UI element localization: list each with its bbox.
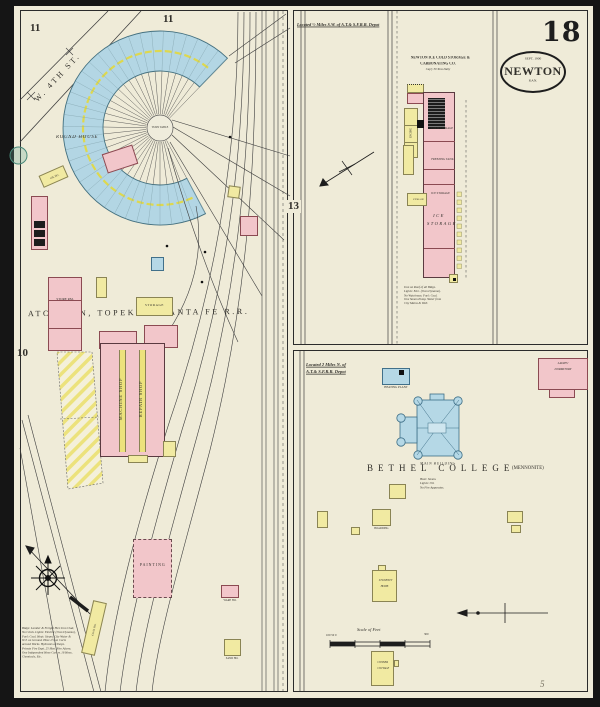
- adjacent-sheet-11-left: 11: [30, 22, 40, 35]
- students-home-label-1: STUDENTS': [379, 579, 390, 582]
- ice-storage-label-2a: ICE: [427, 214, 451, 219]
- library-stamp: [10, 147, 27, 164]
- building-sand-house-ne: [240, 216, 258, 236]
- left-panel-notes: Bldgs: Lumber & Freight Ho's Iron Clad,N…: [22, 627, 116, 659]
- bethel-college-label: BETHEL COLLEGE: [367, 463, 514, 474]
- building-heating-plant: [382, 368, 410, 385]
- adjacent-sheet-11-mid: 11: [163, 13, 173, 26]
- ice-company-name-2: CARBONATING CO.: [411, 62, 466, 66]
- heating-plant-chimney: [399, 370, 404, 375]
- heating-plant-label: HEATING PLANT: [384, 386, 408, 390]
- ice-cooling-building: [403, 145, 414, 175]
- cold-storage-label: COLD STORAGE: [431, 127, 446, 130]
- building-small-w1: [317, 511, 328, 528]
- ice-small-outbuilding: [449, 274, 458, 283]
- ice-storage-annex-label: STORAGE: [413, 198, 421, 201]
- college-located-label-1: Located 2 Miles N. of: [306, 363, 346, 368]
- stamp-date: SEPT. 1900: [515, 57, 551, 61]
- loading-platform-posts: [457, 192, 462, 269]
- building-yellow-narrow: [96, 277, 107, 298]
- paint-shop-label: PAINTING: [140, 563, 165, 568]
- compass-rose: [31, 556, 65, 595]
- adjacent-sheet-10: 10: [17, 347, 28, 360]
- boarding-label: BOARDING: [374, 527, 388, 530]
- conner-cottage-label-1: CONNER: [377, 661, 387, 664]
- pencil-mark: 5: [540, 679, 545, 690]
- stamp-city: NEWTON: [502, 64, 564, 78]
- ware-house-label: WARE HO.: [223, 599, 237, 602]
- building-boarding: [372, 509, 391, 526]
- building-coal-chutes: [31, 196, 48, 250]
- building-small-yellow-ne: [227, 185, 241, 199]
- building-machine-shop: [100, 343, 165, 457]
- building-small-w2: [351, 527, 360, 535]
- ice-storage-label-1: ICE STORAGE: [431, 192, 446, 195]
- track-arrow-ice-panel: [320, 152, 374, 186]
- roundhouse-shape: [63, 31, 227, 225]
- ice-company-name-1: NEWTON ICE COLD STORAGE &: [411, 56, 466, 60]
- condenser-coils-block: [428, 98, 445, 129]
- track-arrow-college-panel: [458, 603, 548, 623]
- sand-house-label: SAND HO.: [225, 657, 239, 660]
- students-home-label-2: HOME: [379, 585, 390, 588]
- building-small-e1: [507, 511, 523, 523]
- building-sand-house: [224, 639, 241, 656]
- ladies-dormitory-label-1: LADIES': [551, 362, 576, 366]
- building-store-room: [48, 277, 82, 351]
- ice-panel-streets: [301, 11, 497, 344]
- freezing-tank-label: FREEZING TANK: [431, 158, 446, 161]
- chimney-block: [417, 120, 424, 128]
- page-number: 18: [542, 17, 582, 49]
- scale-left-numbers: 100 50 0: [326, 634, 337, 638]
- publisher-stamp-oval: SEPT. 1900 NEWTON KAN.: [500, 51, 566, 93]
- ladies-dormitory-wing: [549, 389, 575, 398]
- building-shop-wing-s: [128, 455, 148, 463]
- storage-label: STORAGE: [144, 304, 164, 308]
- repair-shop-label: REPAIR SHOP: [139, 377, 145, 422]
- conner-cottage-label-2: COTTAGE: [377, 667, 387, 670]
- college-panel-streets: [300, 351, 304, 691]
- hatched-coal-shed: [57, 352, 103, 489]
- stamp-state: KAN.: [515, 79, 551, 83]
- scale-bar: [330, 640, 430, 648]
- building-shop-wing-e: [163, 441, 176, 457]
- scale-of-feet-label: Scale of Feet: [357, 628, 380, 633]
- ice-storage-label-2b: STORAGE: [427, 222, 451, 227]
- ice-building-top-yellow: [407, 84, 424, 93]
- machine-shop-label: MACHINE SHOP: [119, 377, 125, 422]
- college-notes: Heat: Steam.Lights: Oil.No Fire Apparatu…: [420, 478, 444, 490]
- conner-cottage-wing: [394, 660, 399, 667]
- ladies-dormitory-label-2: DORMITORY: [551, 368, 576, 372]
- college-located-label-2: A.T.& S.F.R.R. Depot: [306, 370, 346, 375]
- ice-main-building: [423, 92, 455, 278]
- building-paint-shop: [133, 539, 172, 598]
- scale-right-number: 300: [424, 633, 429, 637]
- building-small-blue: [151, 257, 164, 271]
- ice-plant-notes: Iron on Roof of all Bldgs.Lights: Elec. …: [404, 286, 466, 306]
- ice-company-capacity: Cap'y 30 Tons Daily: [416, 68, 460, 72]
- adjacent-sheet-13: 13: [286, 200, 301, 213]
- turntable-label: TURN TABLE: [151, 126, 169, 129]
- ice-building-top-pink: [407, 93, 424, 104]
- engine-label: ENGINE: [410, 127, 413, 140]
- store-room-label: STORE RM.: [56, 298, 75, 302]
- building-small-e2: [511, 525, 521, 533]
- oil-house-label: OIL HO.: [49, 173, 61, 181]
- building-college-outbuilding: [389, 484, 406, 499]
- roundhouse-label: ROUND HOUSE: [56, 135, 98, 141]
- ice-located-label: Located ½ Miles S.W. of A.T.& S.F.R.R. D…: [297, 23, 379, 28]
- building-ware-house: [221, 585, 239, 598]
- college-main-building-shape: [397, 394, 462, 459]
- scanned-sanborn-map: 11 11 10 13 W. 4TH ST. ROUND HOUSE TURN …: [0, 0, 600, 707]
- map-linework: [0, 0, 600, 707]
- bethel-college-sub-label: (MENNONITE): [512, 466, 544, 472]
